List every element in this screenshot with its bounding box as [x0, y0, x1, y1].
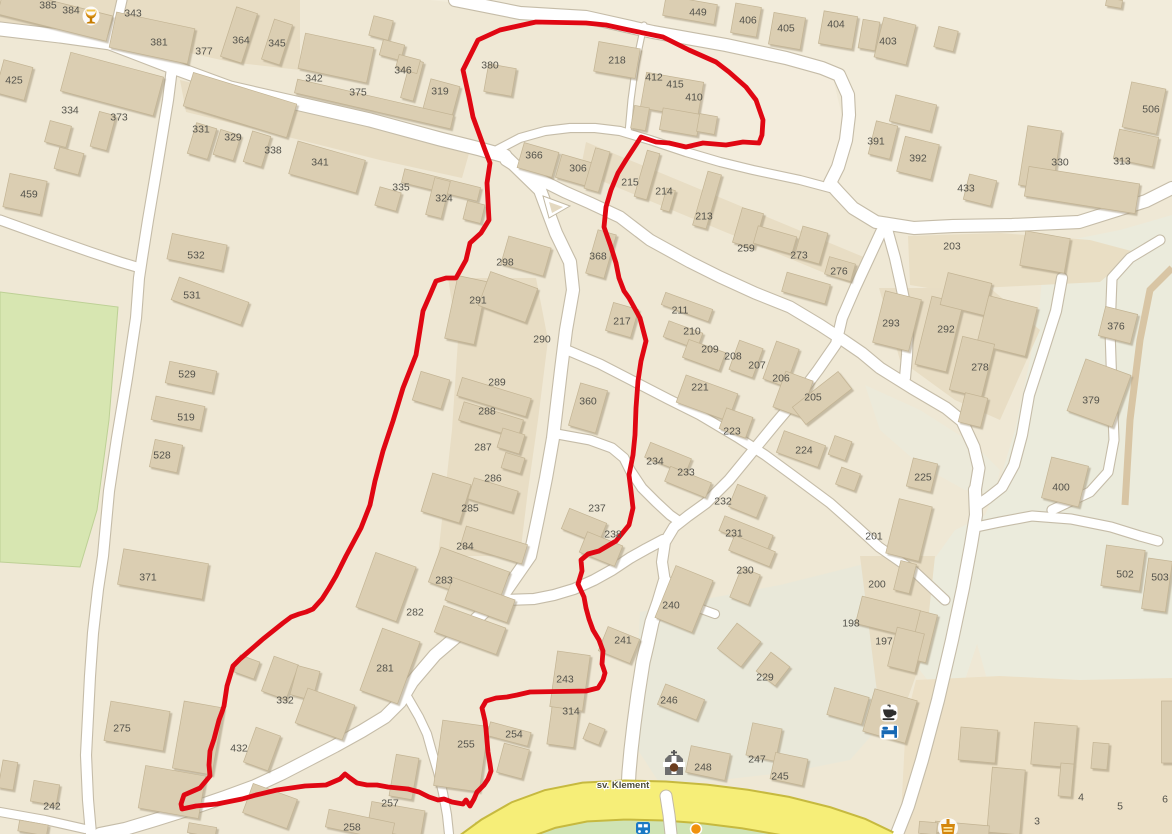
svg-text:293: 293 — [882, 318, 900, 330]
svg-text:531: 531 — [183, 290, 201, 302]
svg-text:6: 6 — [1162, 794, 1168, 806]
svg-text:371: 371 — [139, 572, 157, 584]
svg-text:197: 197 — [875, 636, 893, 648]
svg-text:203: 203 — [943, 241, 961, 253]
svg-text:207: 207 — [748, 360, 766, 372]
svg-text:404: 404 — [827, 19, 845, 31]
svg-text:237: 237 — [588, 503, 606, 515]
svg-text:232: 232 — [714, 496, 732, 508]
svg-text:380: 380 — [481, 60, 499, 72]
svg-text:342: 342 — [305, 73, 323, 85]
svg-text:346: 346 — [394, 65, 412, 77]
svg-text:275: 275 — [113, 723, 131, 735]
svg-text:314: 314 — [562, 706, 580, 718]
svg-text:273: 273 — [790, 250, 808, 262]
svg-text:412: 412 — [645, 72, 663, 84]
svg-text:400: 400 — [1052, 482, 1070, 494]
svg-text:288: 288 — [478, 406, 496, 418]
svg-text:286: 286 — [484, 473, 502, 485]
svg-text:241: 241 — [614, 635, 632, 647]
svg-text:258: 258 — [343, 822, 361, 834]
svg-text:519: 519 — [177, 412, 195, 424]
svg-text:234: 234 — [646, 456, 664, 468]
svg-text:223: 223 — [723, 426, 741, 438]
svg-text:255: 255 — [457, 739, 475, 751]
svg-text:335: 335 — [392, 182, 410, 194]
svg-text:248: 248 — [694, 762, 712, 774]
svg-text:381: 381 — [150, 37, 168, 49]
svg-text:259: 259 — [737, 243, 755, 255]
svg-text:392: 392 — [909, 153, 927, 165]
svg-text:257: 257 — [381, 798, 399, 810]
svg-text:345: 345 — [268, 38, 286, 50]
svg-text:290: 290 — [533, 334, 551, 346]
svg-text:403: 403 — [879, 36, 897, 48]
svg-text:213: 213 — [695, 211, 713, 223]
svg-text:376: 376 — [1107, 321, 1125, 333]
svg-text:528: 528 — [153, 450, 171, 462]
svg-text:364: 364 — [232, 35, 250, 47]
svg-text:215: 215 — [621, 177, 639, 189]
svg-text:432: 432 — [230, 743, 248, 755]
svg-text:319: 319 — [431, 86, 449, 98]
svg-text:4: 4 — [1078, 792, 1084, 804]
svg-text:330: 330 — [1051, 157, 1069, 169]
svg-text:245: 245 — [771, 771, 789, 783]
svg-text:324: 324 — [435, 193, 453, 205]
svg-text:331: 331 — [192, 124, 210, 136]
svg-text:338: 338 — [264, 145, 282, 157]
svg-text:377: 377 — [195, 46, 213, 58]
svg-text:502: 502 — [1116, 569, 1134, 581]
svg-text:306: 306 — [569, 163, 587, 175]
svg-text:291: 291 — [469, 295, 487, 307]
svg-text:247: 247 — [748, 754, 766, 766]
svg-text:298: 298 — [496, 257, 514, 269]
svg-text:341: 341 — [311, 157, 329, 169]
svg-text:5: 5 — [1117, 801, 1123, 813]
svg-text:375: 375 — [349, 87, 367, 99]
svg-text:532: 532 — [187, 250, 205, 262]
svg-text:343: 343 — [124, 8, 142, 20]
svg-text:282: 282 — [406, 607, 424, 619]
svg-text:285: 285 — [461, 503, 479, 515]
svg-text:229: 229 — [756, 672, 774, 684]
svg-text:224: 224 — [795, 445, 813, 457]
svg-text:214: 214 — [655, 186, 673, 198]
svg-text:200: 200 — [868, 579, 886, 591]
svg-text:238: 238 — [604, 529, 622, 541]
svg-text:206: 206 — [772, 373, 790, 385]
svg-text:230: 230 — [736, 565, 754, 577]
svg-text:284: 284 — [456, 541, 474, 553]
svg-text:385: 385 — [39, 0, 57, 12]
svg-text:391: 391 — [867, 136, 885, 148]
svg-text:406: 406 — [739, 15, 757, 27]
svg-text:231: 231 — [725, 528, 743, 540]
svg-text:433: 433 — [957, 183, 975, 195]
svg-text:410: 410 — [685, 92, 703, 104]
svg-text:459: 459 — [20, 189, 38, 201]
svg-text:278: 278 — [971, 362, 989, 374]
svg-text:329: 329 — [224, 132, 242, 144]
svg-text:209: 209 — [701, 344, 719, 356]
svg-text:283: 283 — [435, 575, 453, 587]
svg-text:198: 198 — [842, 618, 860, 630]
svg-text:276: 276 — [830, 266, 848, 278]
svg-text:254: 254 — [505, 729, 523, 741]
svg-text:415: 415 — [666, 79, 684, 91]
svg-text:313: 313 — [1113, 156, 1131, 168]
svg-text:225: 225 — [914, 472, 932, 484]
svg-text:218: 218 — [608, 55, 626, 67]
svg-text:425: 425 — [5, 75, 23, 87]
svg-text:368: 368 — [589, 251, 607, 263]
svg-text:334: 334 — [61, 105, 79, 117]
svg-text:405: 405 — [777, 23, 795, 35]
svg-text:233: 233 — [677, 467, 695, 479]
svg-text:366: 366 — [525, 150, 543, 162]
svg-text:360: 360 — [579, 396, 597, 408]
svg-text:287: 287 — [474, 442, 492, 454]
svg-text:506: 506 — [1142, 104, 1160, 116]
svg-text:373: 373 — [110, 112, 128, 124]
svg-text:243: 243 — [556, 674, 574, 686]
svg-text:242: 242 — [43, 801, 61, 813]
svg-text:221: 221 — [691, 382, 709, 394]
svg-text:205: 205 — [804, 392, 822, 404]
svg-text:332: 332 — [276, 695, 294, 707]
svg-text:210: 210 — [683, 326, 701, 338]
svg-text:529: 529 — [178, 369, 196, 381]
svg-text:217: 217 — [613, 316, 631, 328]
svg-text:3: 3 — [1034, 816, 1040, 828]
svg-text:449: 449 — [689, 7, 707, 19]
svg-text:240: 240 — [662, 600, 680, 612]
svg-text:384: 384 — [62, 5, 80, 17]
svg-text:292: 292 — [937, 324, 955, 336]
svg-text:211: 211 — [672, 305, 689, 317]
svg-text:289: 289 — [488, 377, 506, 389]
svg-text:sv. Klement: sv. Klement — [597, 780, 650, 791]
svg-text:379: 379 — [1082, 395, 1100, 407]
svg-text:281: 281 — [376, 663, 394, 675]
svg-text:201: 201 — [865, 531, 883, 543]
svg-text:208: 208 — [724, 351, 742, 363]
svg-text:246: 246 — [660, 695, 678, 707]
svg-text:503: 503 — [1151, 572, 1169, 584]
